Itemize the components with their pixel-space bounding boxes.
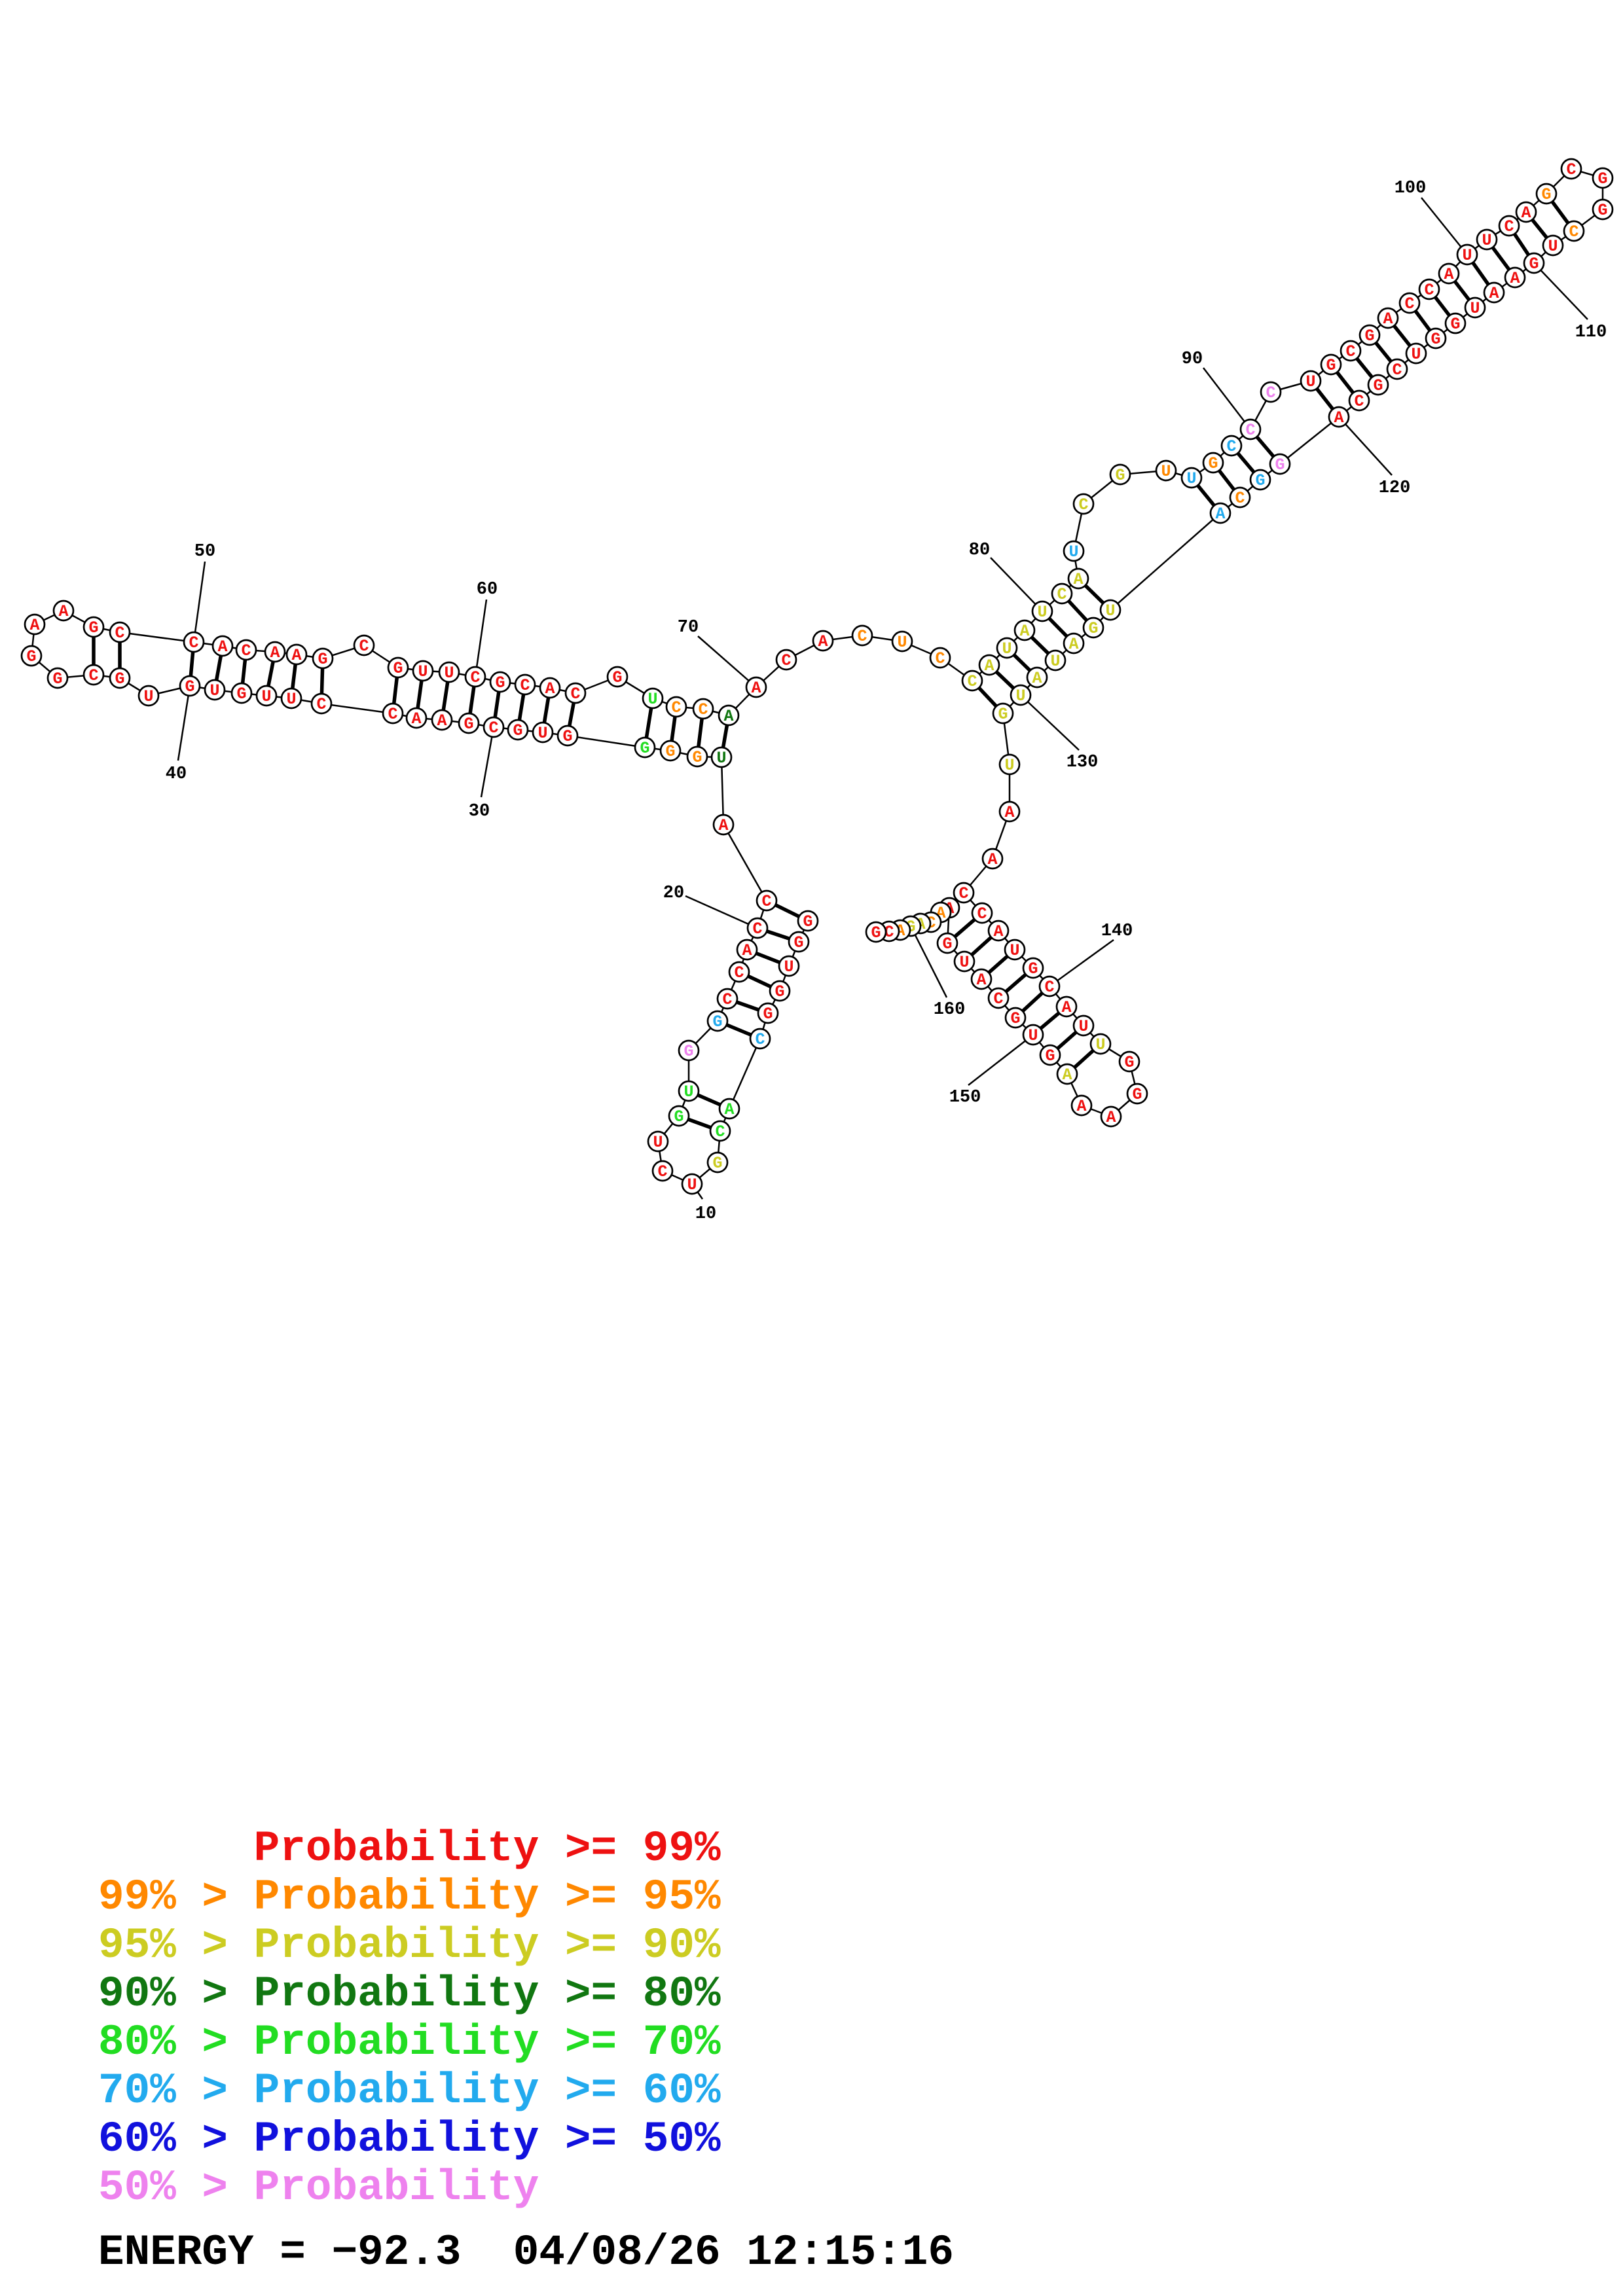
- svg-text:G: G: [684, 1042, 693, 1061]
- svg-text:C: C: [671, 698, 681, 717]
- svg-text:C: C: [935, 649, 945, 668]
- svg-text:60% > Probability >= 50%: 60% > Probability >= 50%: [98, 2115, 721, 2164]
- svg-text:A: A: [1019, 622, 1029, 641]
- svg-text:C: C: [1226, 437, 1236, 456]
- svg-text:160: 160: [934, 1000, 966, 1020]
- svg-text:20: 20: [663, 884, 684, 903]
- svg-text:A: A: [1061, 998, 1071, 1017]
- svg-text:G: G: [1255, 471, 1265, 490]
- svg-text:G: G: [1045, 1047, 1055, 1066]
- svg-text:A: A: [1068, 635, 1078, 654]
- svg-text:U: U: [1105, 601, 1115, 620]
- svg-text:A: A: [1510, 269, 1520, 288]
- svg-text:C: C: [488, 719, 498, 738]
- svg-text:U: U: [1010, 941, 1019, 960]
- svg-text:G: G: [52, 670, 62, 689]
- svg-text:G: G: [393, 659, 403, 678]
- svg-text:A: A: [1444, 265, 1453, 284]
- svg-text:C: C: [1424, 281, 1434, 300]
- svg-text:C: C: [698, 700, 708, 719]
- svg-text:C: C: [734, 963, 744, 982]
- svg-text:G: G: [236, 685, 246, 704]
- svg-text:A: A: [1489, 284, 1499, 303]
- svg-text:120: 120: [1379, 478, 1411, 498]
- svg-text:G: G: [1115, 466, 1125, 485]
- svg-text:G: G: [1028, 960, 1038, 978]
- svg-text:G: G: [763, 1005, 773, 1024]
- svg-text:130: 130: [1067, 753, 1099, 772]
- svg-text:50: 50: [194, 542, 215, 562]
- svg-text:C: C: [241, 641, 251, 660]
- svg-text:A: A: [751, 679, 761, 698]
- svg-text:U: U: [1028, 1026, 1038, 1045]
- svg-text:U: U: [1095, 1035, 1105, 1054]
- svg-text:C: C: [657, 1162, 667, 1181]
- svg-text:C: C: [781, 651, 791, 670]
- svg-text:U: U: [261, 687, 271, 706]
- svg-text:U: U: [716, 749, 726, 768]
- svg-text:95% > Probability >= 90%: 95% > Probability >= 90%: [98, 1921, 721, 1970]
- svg-text:A: A: [718, 816, 728, 835]
- svg-text:G: G: [1364, 327, 1374, 346]
- svg-text:G: G: [998, 705, 1008, 724]
- svg-text:G: G: [1088, 619, 1098, 638]
- svg-text:C: C: [88, 666, 98, 685]
- svg-text:80% > Probability >= 70%: 80% > Probability >= 70%: [98, 2018, 721, 2067]
- svg-text:A: A: [1032, 669, 1042, 688]
- svg-text:110: 110: [1575, 323, 1607, 342]
- svg-text:U: U: [1037, 603, 1047, 622]
- svg-text:30: 30: [469, 802, 490, 821]
- svg-text:A: A: [1521, 204, 1531, 223]
- svg-text:A: A: [545, 679, 555, 698]
- svg-text:A: A: [987, 850, 997, 869]
- svg-text:C: C: [958, 884, 968, 903]
- svg-text:G: G: [115, 670, 124, 689]
- svg-text:G: G: [562, 727, 572, 746]
- svg-text:U: U: [684, 1083, 693, 1102]
- svg-text:G: G: [775, 982, 784, 1001]
- svg-text:U: U: [1050, 652, 1060, 671]
- svg-text:G: G: [1208, 454, 1218, 473]
- svg-text:C: C: [1569, 223, 1578, 242]
- svg-text:60: 60: [477, 580, 498, 600]
- svg-text:A: A: [1383, 310, 1393, 329]
- svg-text:G: G: [513, 721, 522, 740]
- svg-text:A: A: [29, 616, 39, 635]
- svg-text:G: G: [1431, 330, 1440, 349]
- svg-text:C: C: [359, 637, 369, 656]
- svg-text:C: C: [1245, 421, 1255, 440]
- svg-text:U: U: [1411, 345, 1421, 364]
- svg-text:A: A: [1062, 1066, 1072, 1085]
- svg-text:C: C: [752, 920, 762, 939]
- svg-text:U: U: [286, 690, 296, 709]
- svg-text:A: A: [270, 643, 280, 662]
- svg-text:U: U: [1002, 639, 1012, 658]
- svg-text:A: A: [437, 711, 447, 730]
- svg-text:G: G: [665, 742, 675, 761]
- svg-text:G: G: [464, 715, 473, 734]
- svg-text:C: C: [1044, 978, 1054, 997]
- svg-text:G: G: [942, 935, 952, 954]
- svg-text:C: C: [1504, 217, 1514, 236]
- svg-text:G: G: [712, 1013, 722, 1031]
- svg-text:C: C: [1078, 495, 1088, 514]
- svg-text:G: G: [1010, 1009, 1020, 1028]
- svg-text:C: C: [993, 990, 1003, 1009]
- svg-text:C: C: [977, 905, 987, 924]
- svg-text:C: C: [316, 695, 326, 714]
- svg-text:C: C: [761, 892, 771, 911]
- svg-text:C: C: [1566, 160, 1576, 179]
- svg-text:80: 80: [969, 541, 990, 560]
- svg-text:G: G: [612, 668, 622, 687]
- svg-text:C: C: [1392, 361, 1402, 380]
- svg-text:A: A: [993, 922, 1003, 941]
- svg-text:A: A: [1215, 505, 1225, 524]
- svg-text:U: U: [143, 687, 153, 706]
- svg-text:U: U: [418, 662, 428, 681]
- svg-text:A: A: [984, 656, 994, 675]
- svg-text:G: G: [1450, 315, 1460, 334]
- svg-text:A: A: [723, 707, 733, 726]
- svg-text:C: C: [967, 672, 977, 691]
- svg-text:C: C: [722, 990, 732, 1009]
- svg-text:U: U: [897, 633, 907, 652]
- svg-text:G: G: [674, 1107, 684, 1126]
- svg-text:G: G: [640, 739, 649, 758]
- svg-text:U: U: [210, 681, 219, 700]
- svg-text:A: A: [1004, 803, 1014, 822]
- svg-text:G: G: [88, 619, 98, 637]
- svg-text:U: U: [1068, 543, 1078, 562]
- svg-text:C: C: [1404, 295, 1414, 314]
- svg-text:G: G: [692, 748, 702, 767]
- svg-text:U: U: [784, 958, 793, 977]
- svg-text:U: U: [1015, 687, 1025, 706]
- svg-text:C: C: [1345, 342, 1355, 361]
- svg-text:U: U: [1462, 246, 1472, 265]
- svg-text:U: U: [647, 690, 657, 709]
- svg-text:90% > Probability >= 80%: 90% > Probability >= 80%: [98, 1969, 721, 2018]
- svg-text:90: 90: [1182, 350, 1203, 369]
- svg-text:G: G: [1597, 170, 1607, 188]
- svg-text:A: A: [1076, 1097, 1086, 1116]
- svg-text:C: C: [1354, 392, 1364, 411]
- svg-text:U: U: [959, 953, 969, 972]
- svg-text:U: U: [1161, 462, 1171, 481]
- svg-text:A: A: [291, 646, 301, 665]
- svg-text:A: A: [724, 1100, 734, 1119]
- svg-text:U: U: [1470, 299, 1480, 318]
- svg-text:G: G: [1124, 1053, 1134, 1072]
- svg-text:U: U: [653, 1133, 663, 1152]
- svg-text:G: G: [793, 933, 803, 952]
- svg-text:70: 70: [678, 618, 699, 637]
- svg-text:G: G: [185, 677, 194, 696]
- svg-text:C: C: [1057, 585, 1067, 604]
- svg-text:G: G: [1541, 185, 1551, 204]
- svg-text:U: U: [1078, 1017, 1088, 1036]
- svg-text:C: C: [470, 668, 480, 687]
- svg-text:40: 40: [166, 764, 187, 784]
- svg-text:150: 150: [949, 1088, 981, 1107]
- svg-text:U: U: [1305, 372, 1315, 391]
- svg-text:A: A: [1334, 408, 1343, 427]
- svg-text:A: A: [818, 632, 828, 651]
- svg-text:U: U: [687, 1175, 697, 1194]
- svg-text:C: C: [857, 627, 867, 646]
- svg-text:G: G: [712, 1154, 722, 1173]
- svg-text:C: C: [189, 634, 198, 653]
- svg-text:C: C: [388, 705, 397, 724]
- svg-text:A: A: [411, 709, 421, 728]
- svg-text:99% > Probability >= 95%: 99% > Probability >= 95%: [98, 1873, 721, 1922]
- svg-text:G: G: [1326, 356, 1336, 375]
- svg-text:G: G: [1275, 456, 1285, 475]
- svg-text:G: G: [871, 924, 881, 942]
- svg-text:U: U: [1004, 756, 1014, 775]
- svg-text:G: G: [1373, 376, 1383, 395]
- svg-text:U: U: [1482, 231, 1491, 250]
- svg-text:10: 10: [695, 1204, 716, 1224]
- svg-text:50% > Probability: 50% > Probability: [98, 2163, 539, 2212]
- svg-text:A: A: [58, 602, 68, 621]
- svg-text:U: U: [444, 664, 454, 683]
- svg-text:G: G: [1132, 1085, 1142, 1104]
- svg-text:C: C: [715, 1122, 725, 1141]
- svg-text:A: A: [1106, 1108, 1116, 1127]
- svg-text:G: G: [495, 673, 505, 692]
- svg-text:140: 140: [1101, 922, 1133, 941]
- svg-text:G: G: [318, 650, 327, 669]
- svg-text:C: C: [1235, 489, 1245, 508]
- svg-text:A: A: [1073, 570, 1083, 589]
- svg-text:C: C: [520, 676, 530, 695]
- svg-text:G: G: [803, 912, 812, 931]
- svg-text:Probability >= 99%: Probability >= 99%: [98, 1824, 721, 1873]
- svg-text:U: U: [538, 724, 547, 743]
- svg-text:ENERGY = −92.3 04/08/26 12:15: ENERGY = −92.3 04/08/26 12:15:16: [98, 2228, 954, 2277]
- svg-text:U: U: [1548, 237, 1558, 256]
- svg-text:A: A: [217, 637, 227, 656]
- svg-text:U: U: [1186, 469, 1196, 488]
- svg-text:G: G: [26, 647, 36, 666]
- svg-text:C: C: [570, 685, 580, 704]
- svg-text:C: C: [115, 624, 124, 643]
- svg-text:C: C: [755, 1030, 765, 1049]
- svg-text:100: 100: [1395, 179, 1427, 198]
- svg-text:C: C: [1266, 384, 1275, 403]
- svg-text:A: A: [976, 971, 986, 990]
- svg-text:70% > Probability >= 60%: 70% > Probability >= 60%: [98, 2066, 721, 2115]
- svg-text:A: A: [742, 941, 752, 960]
- svg-text:G: G: [1529, 255, 1539, 274]
- svg-text:G: G: [1597, 201, 1607, 220]
